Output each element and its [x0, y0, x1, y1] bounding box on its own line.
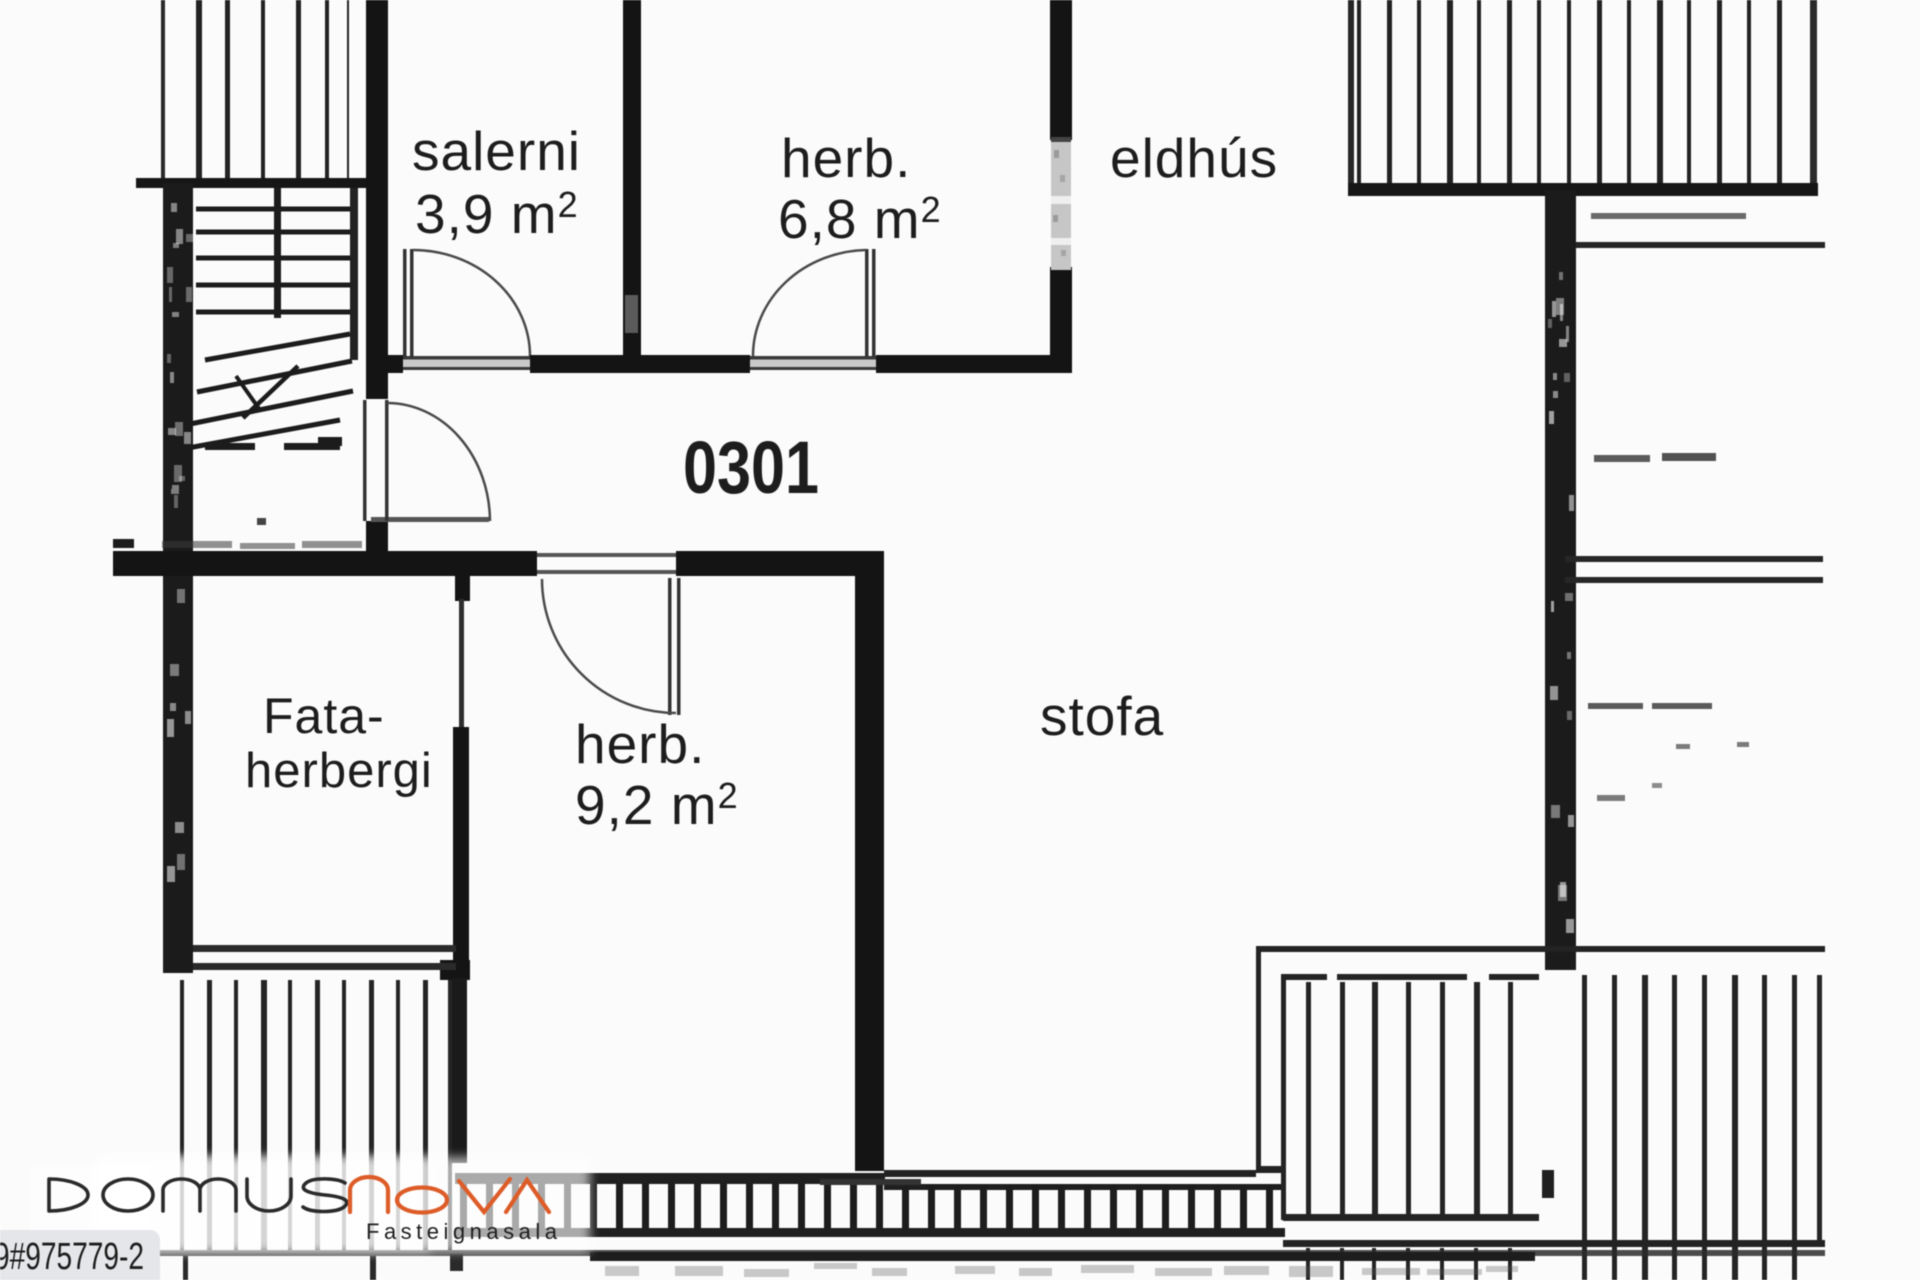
svg-text:herb.: herb. — [575, 713, 705, 775]
svg-text:0301: 0301 — [683, 426, 819, 509]
svg-text:herbergi: herbergi — [245, 744, 433, 798]
svg-text:eldhús: eldhús — [1110, 127, 1278, 189]
svg-text:6,8 m2: 6,8 m2 — [778, 188, 942, 250]
svg-text:9#975779-2: 9#975779-2 — [0, 1236, 144, 1278]
svg-text:salerni: salerni — [412, 120, 581, 182]
svg-text:9,2 m2: 9,2 m2 — [575, 774, 739, 836]
svg-text:herb.: herb. — [781, 127, 911, 189]
svg-text:3,9 m2: 3,9 m2 — [415, 183, 579, 245]
svg-text:Fata-: Fata- — [263, 688, 385, 744]
svg-text:Fasteignasala: Fasteignasala — [366, 1219, 561, 1244]
svg-text:stofa: stofa — [1040, 685, 1164, 747]
